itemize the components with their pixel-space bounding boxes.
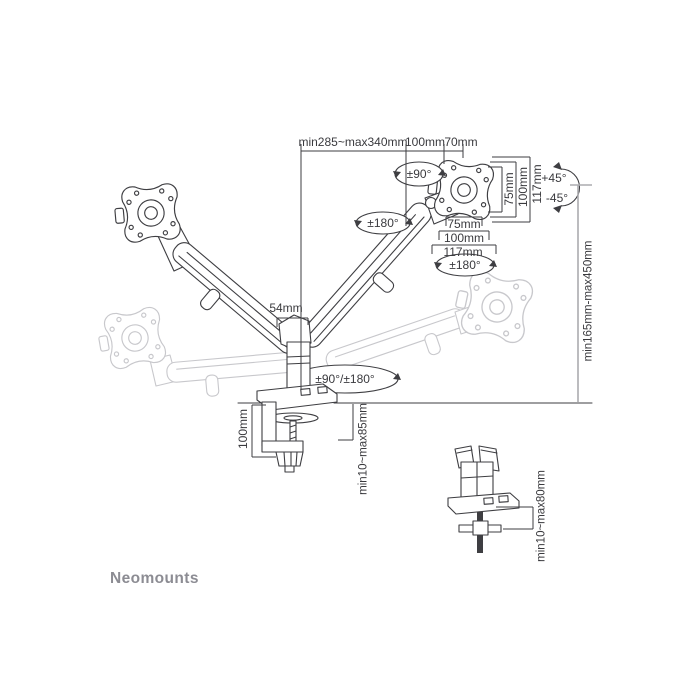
dim-label-vesa-v75: 75mm (503, 172, 515, 205)
dim-label-plate-offset: 70mm (444, 136, 477, 148)
desk-clamp (257, 384, 337, 472)
dim-label-grommet-desk-range: min10~max80mm (536, 470, 548, 562)
brand-logo: Neomounts (110, 570, 199, 588)
dim-label-vesa-h117: 117mm (443, 246, 482, 258)
grommet-mount-inset (448, 446, 519, 553)
label-head-swivel: ±90° (407, 168, 432, 180)
arm-left (157, 227, 303, 371)
product-diagram-canvas: min285~max340mm 100mm 70mm ±90° ±180° ±1… (0, 0, 700, 700)
dim-label-clamp-desk-range: min10~max85mm (358, 403, 370, 495)
clamp-desk-range-dimension-line (338, 404, 353, 440)
label-left-elbow-rotation: ±180° (367, 217, 398, 229)
dim-label-clamp-height: 100mm (237, 409, 249, 449)
monitor-arm-line-drawing (0, 0, 700, 700)
dim-label-plate-width: 100mm (405, 136, 445, 148)
dim-label-vesa-v100: 100mm (517, 167, 529, 207)
label-right-vesa-rotation: ±180° (449, 259, 480, 271)
dim-label-arm-reach: min285~max340mm (298, 136, 407, 148)
dim-label-height-range: min165mm-max450mm (583, 241, 595, 362)
label-tilt-down: -45° (546, 192, 568, 204)
label-tilt-up: +45° (541, 172, 566, 184)
vesa-plate-left (113, 183, 181, 244)
dim-label-pole-width: 54mm (269, 302, 302, 314)
dim-label-vesa-h75: 75mm (447, 218, 480, 230)
label-base-rotation: ±90°/±180° (315, 373, 374, 385)
tilt-indicator-arc (553, 162, 580, 213)
ghost-vesa-plate-left (95, 306, 167, 372)
dim-label-vesa-h100: 100mm (444, 232, 484, 244)
